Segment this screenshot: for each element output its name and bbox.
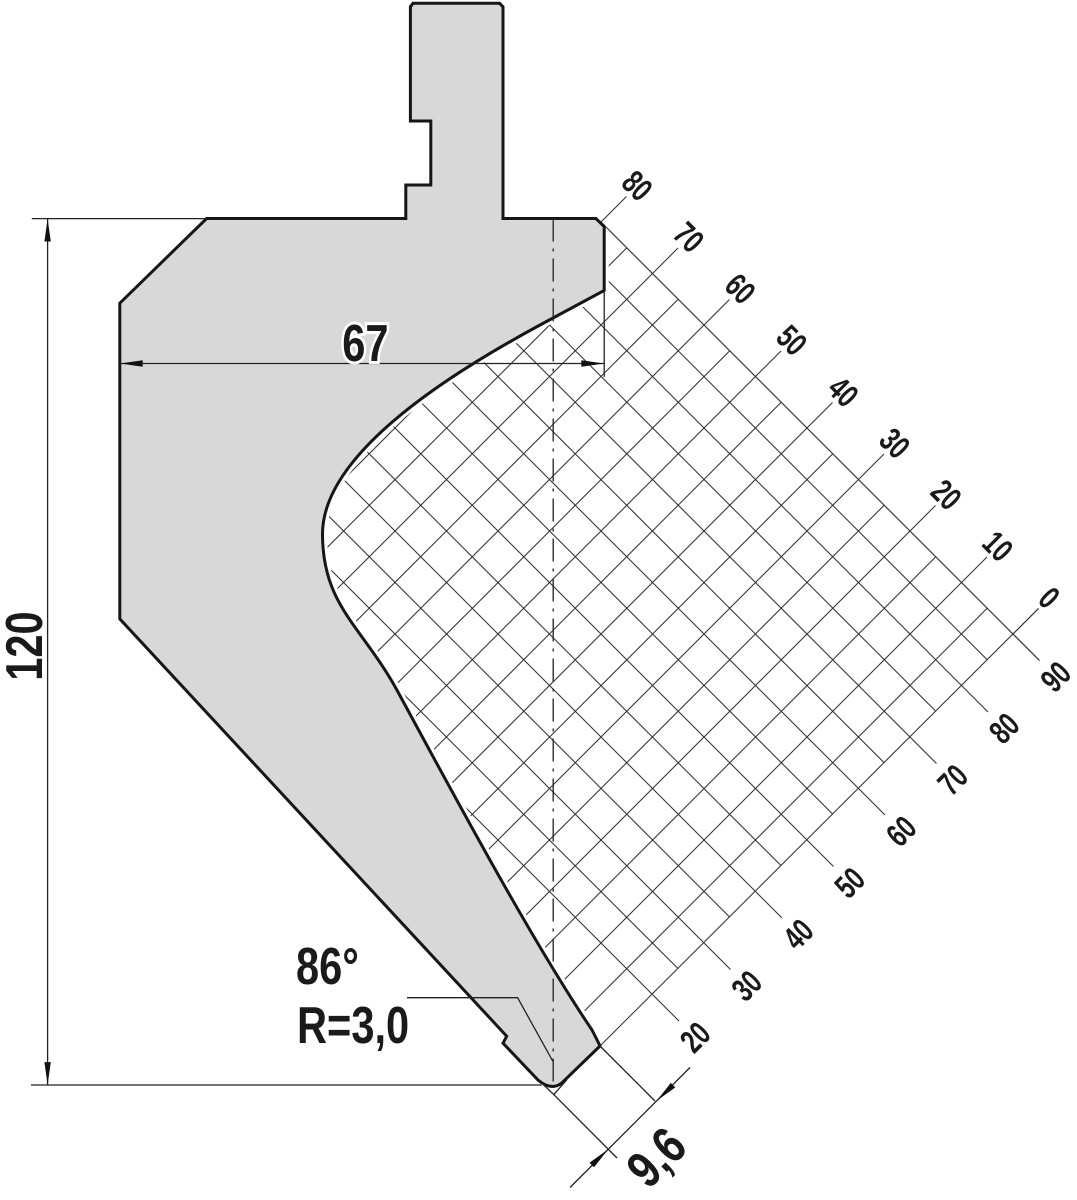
svg-text:86°: 86° xyxy=(296,937,359,996)
svg-text:67: 67 xyxy=(342,314,388,373)
svg-text:120: 120 xyxy=(0,611,53,680)
svg-text:R=3,0: R=3,0 xyxy=(297,996,409,1055)
